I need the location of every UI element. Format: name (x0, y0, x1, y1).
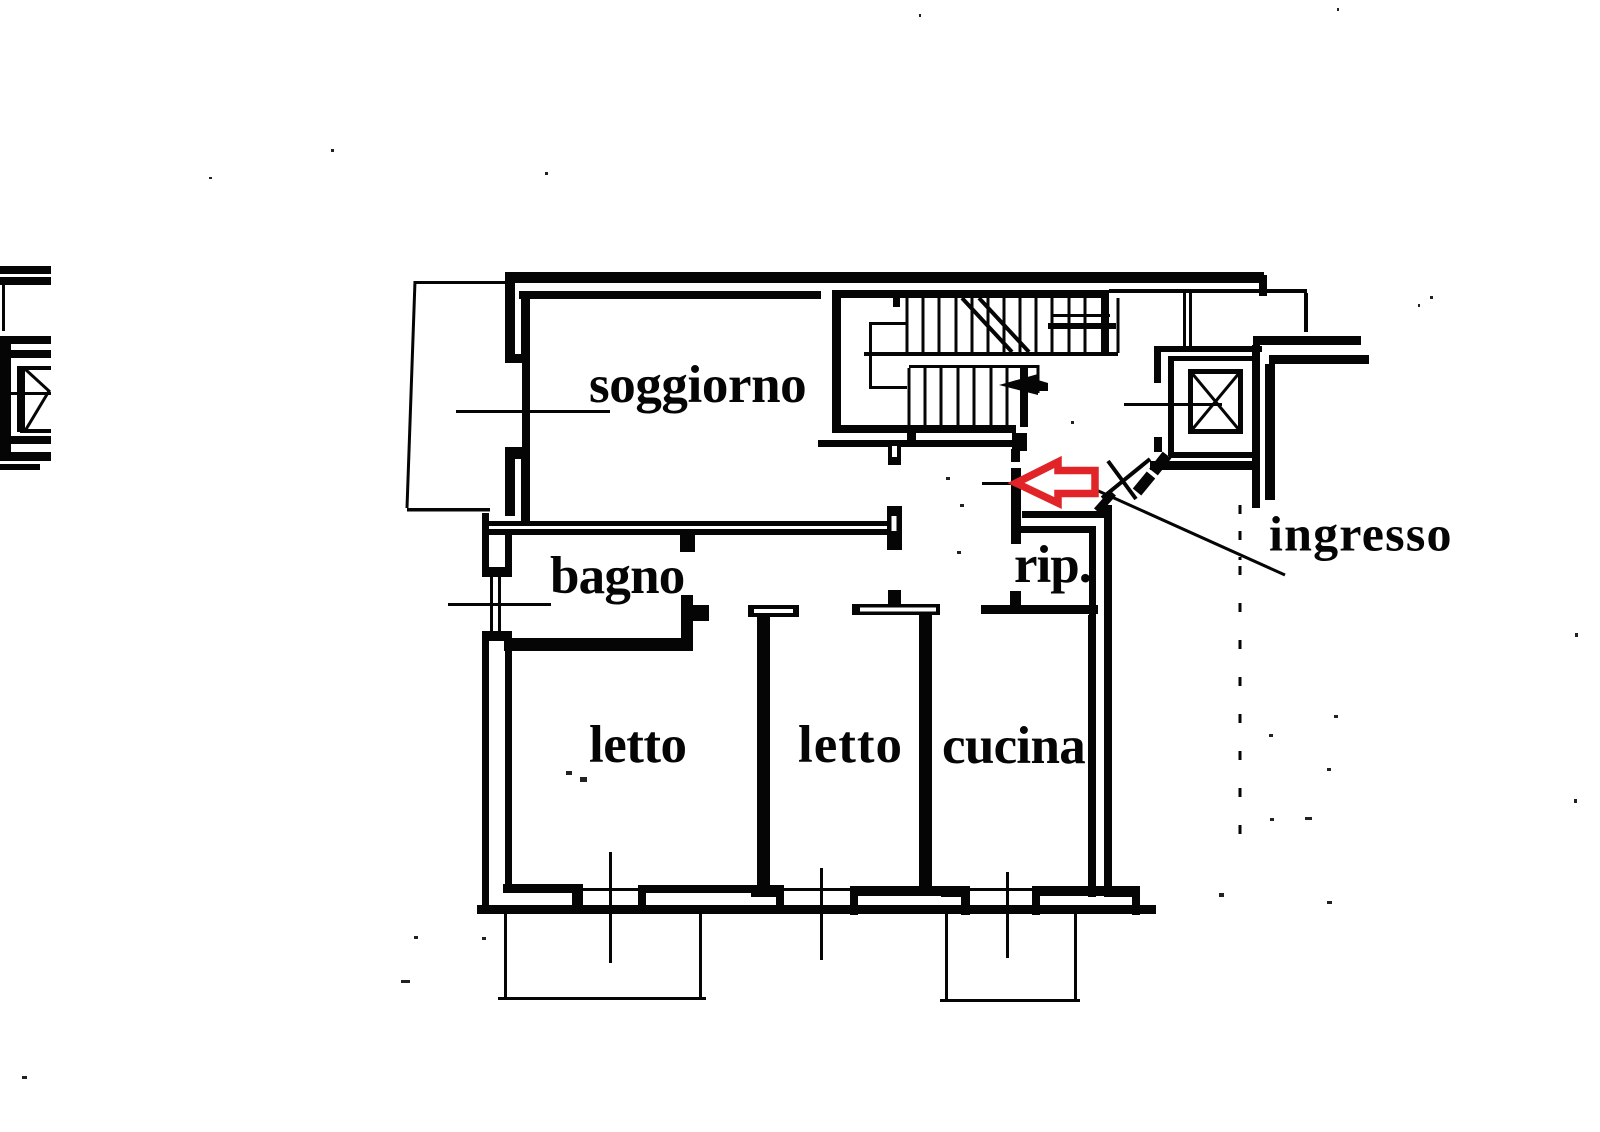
svg-text:soggiorno: soggiorno (589, 356, 806, 414)
svg-text:bagno: bagno (550, 547, 684, 605)
svg-text:letto: letto (589, 716, 687, 774)
svg-text:rip.: rip. (1014, 536, 1091, 594)
svg-text:letto: letto (798, 716, 903, 774)
svg-text:ingresso: ingresso (1269, 506, 1453, 562)
svg-text:cucina: cucina (942, 717, 1085, 775)
